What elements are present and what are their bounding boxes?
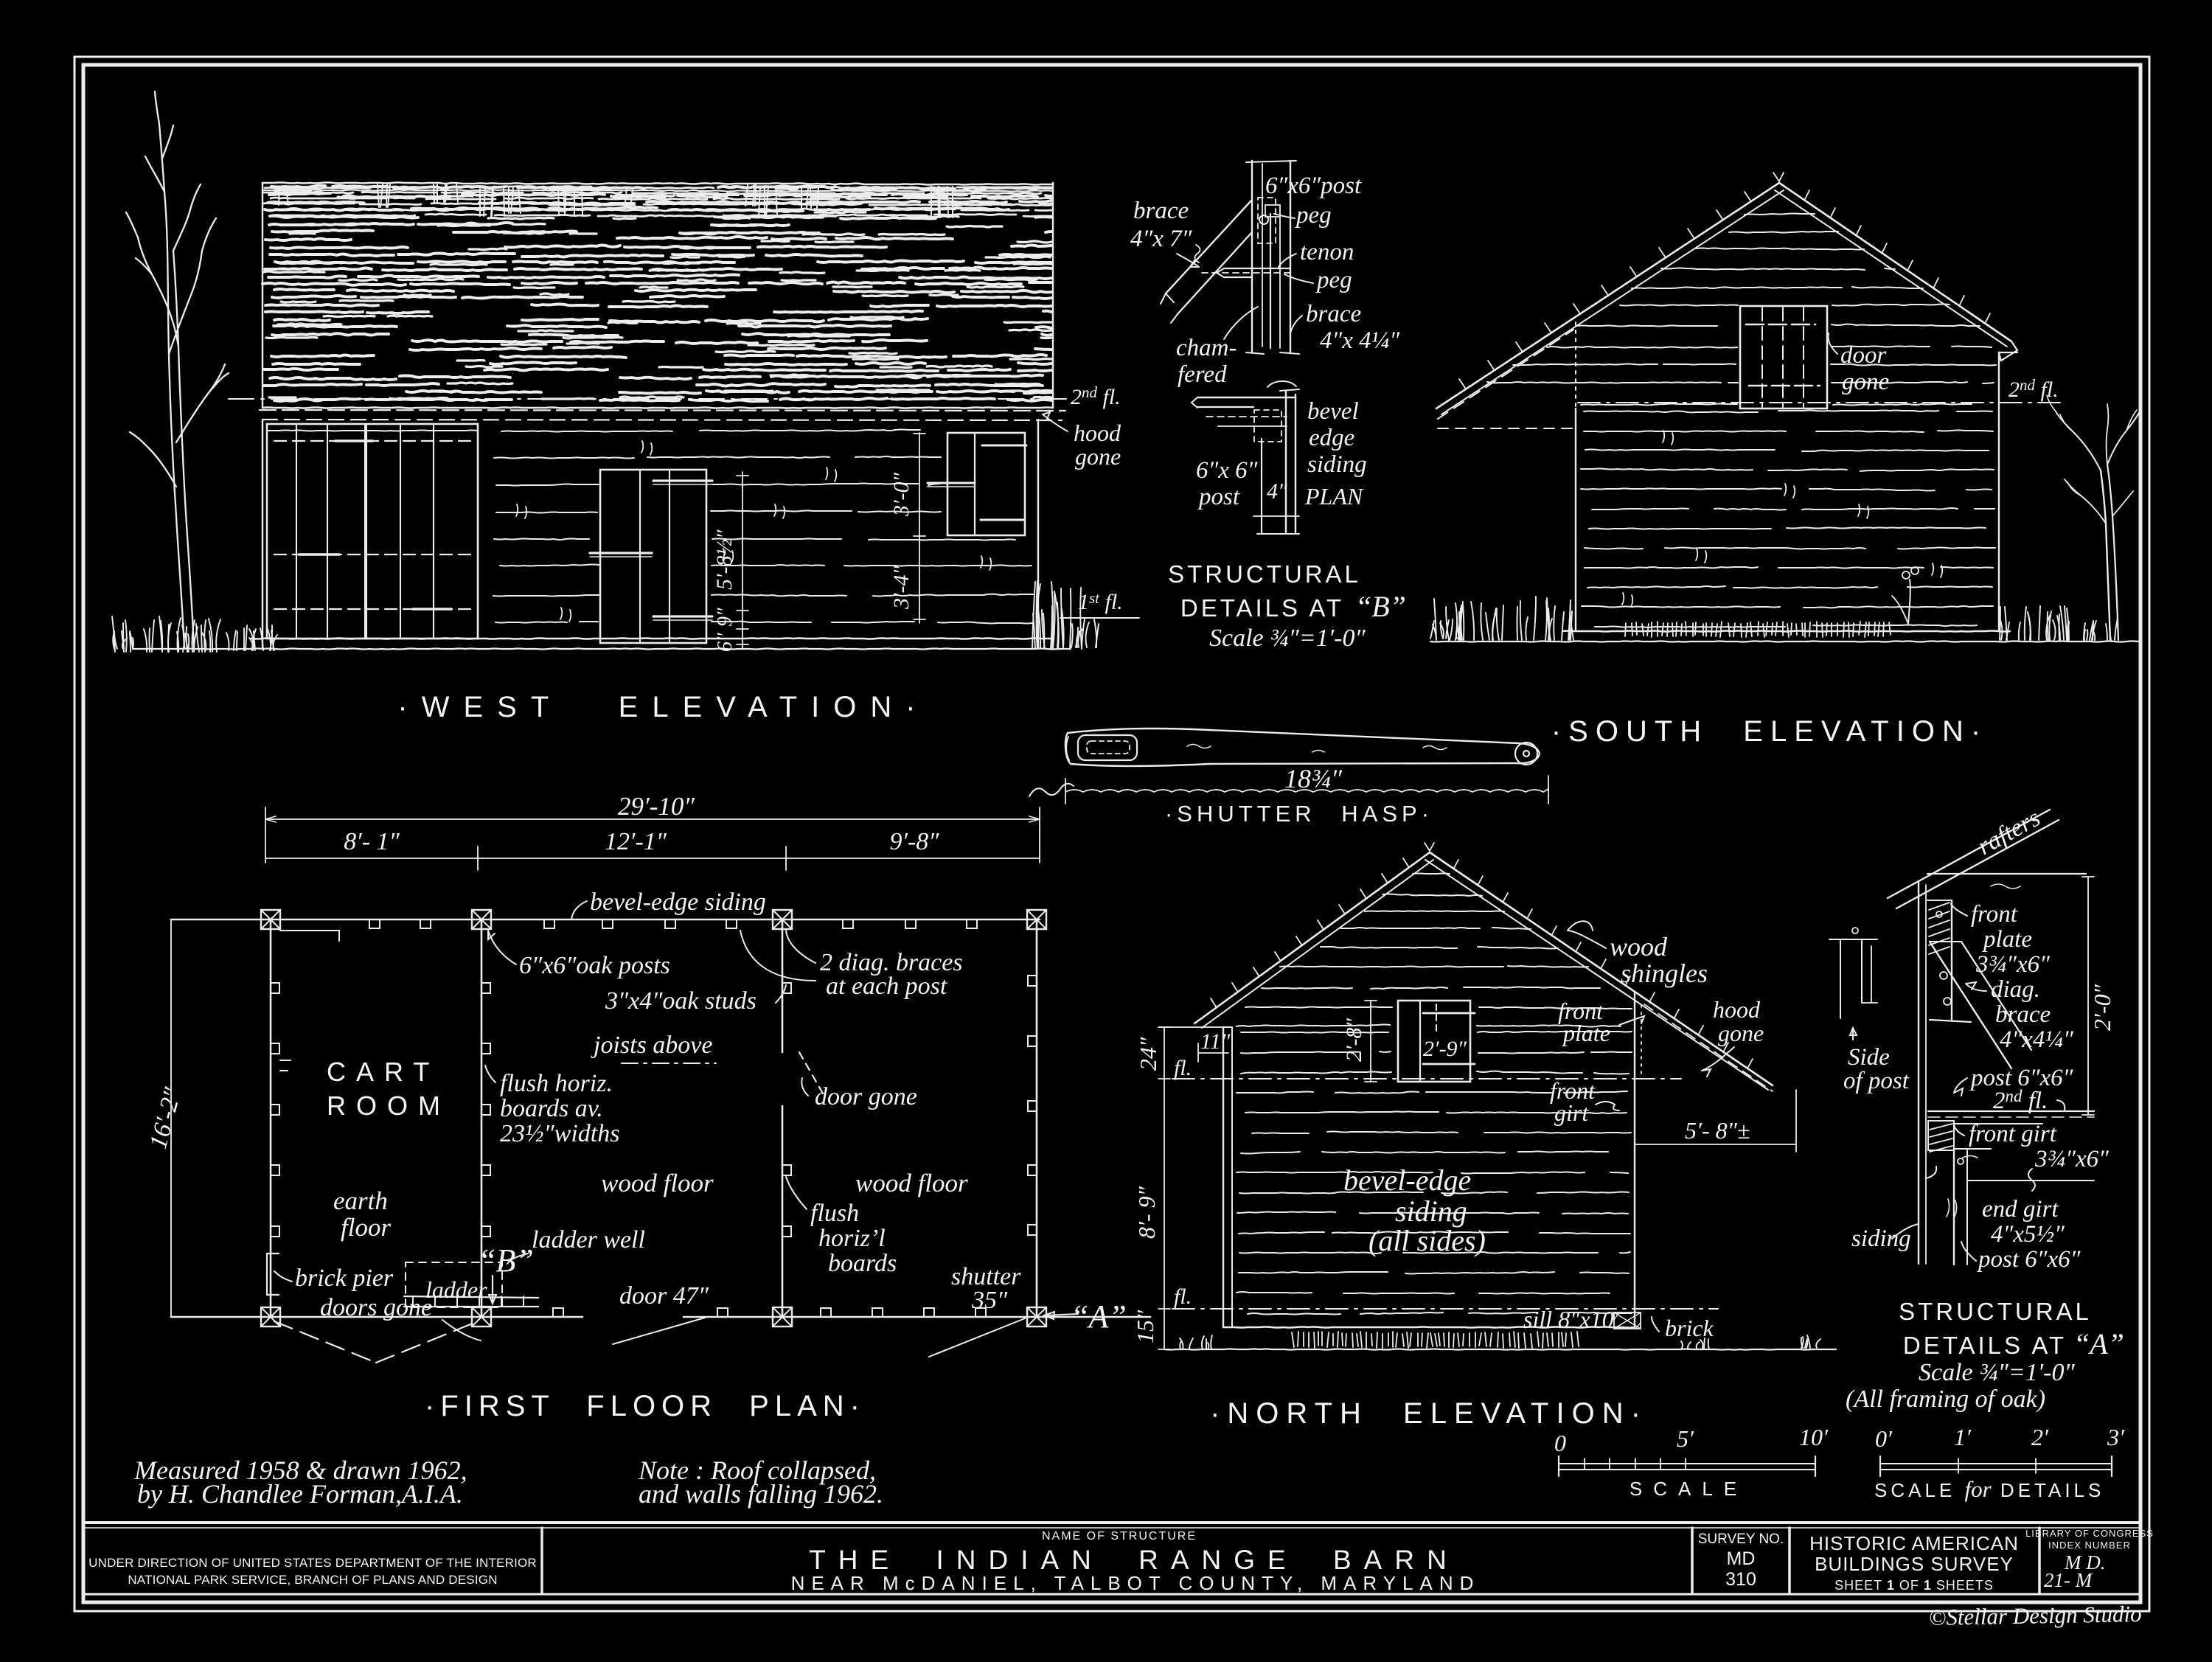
- svg-text:of post: of post: [1843, 1068, 1910, 1094]
- svg-text:INDEX NUMBER: INDEX NUMBER: [2048, 1540, 2131, 1551]
- svg-text:·FIRST FLOOR PLAN·: ·FIRST FLOOR PLAN·: [425, 1390, 866, 1422]
- svg-text:joists above: joists above: [591, 1032, 712, 1059]
- svg-text:doors gone: doors gone: [320, 1294, 432, 1321]
- svg-text:8′- 1″: 8′- 1″: [344, 828, 400, 855]
- svg-text:18¾″: 18¾″: [1284, 764, 1343, 793]
- svg-text:310: 310: [1725, 1569, 1756, 1590]
- svg-text:cham-: cham-: [1176, 335, 1237, 361]
- svg-text:35″: 35″: [971, 1287, 1008, 1314]
- svg-text:flush horiz.: flush horiz.: [500, 1070, 613, 1097]
- svg-text:tenon: tenon: [1300, 239, 1354, 265]
- svg-text:brick pier: brick pier: [295, 1265, 394, 1292]
- svg-text:post 6″x6″: post 6″x6″: [1977, 1246, 2081, 1273]
- svg-text:fl.: fl.: [1174, 1284, 1192, 1309]
- svg-text:peg: peg: [1315, 267, 1352, 293]
- svg-text:siding: siding: [1395, 1195, 1467, 1228]
- svg-text:post: post: [1197, 484, 1240, 510]
- svg-text:SCALE for DETAILS: SCALE for DETAILS: [1874, 1476, 2104, 1502]
- svg-text:wood: wood: [1610, 932, 1668, 962]
- svg-text:6″x6″post: 6″x6″post: [1265, 173, 1362, 199]
- svg-text:3′-0″: 3′-0″: [889, 472, 914, 517]
- svg-text:ladder: ladder: [425, 1276, 487, 1303]
- svg-text:plate: plate: [1982, 926, 2032, 953]
- svg-text:5′: 5′: [1677, 1425, 1694, 1452]
- svg-text:2′-9″: 2′-9″: [1423, 1037, 1467, 1061]
- svg-text:2′: 2′: [2031, 1424, 2049, 1450]
- svg-text:3¾″x6″: 3¾″x6″: [1975, 951, 2051, 978]
- svg-text:1′: 1′: [1954, 1424, 1972, 1450]
- svg-text:5′- 8″±: 5′- 8″±: [1685, 1117, 1750, 1144]
- svg-text:brace: brace: [1133, 198, 1189, 224]
- svg-text:front: front: [1971, 901, 2018, 928]
- svg-text:gone: gone: [1842, 369, 1889, 395]
- svg-text:6″x6″oak posts: 6″x6″oak posts: [519, 952, 670, 979]
- svg-text:sill 8″x10: sill 8″x10: [1523, 1306, 1614, 1332]
- svg-text:and walls falling 1962.: and walls falling 1962.: [639, 1479, 883, 1509]
- svg-text:“B”: “B”: [478, 1242, 534, 1279]
- svg-text:10′: 10′: [1799, 1424, 1829, 1450]
- svg-text:9″: 9″: [714, 608, 737, 627]
- svg-text:boards: boards: [828, 1250, 897, 1277]
- svg-text:PLAN: PLAN: [1304, 483, 1364, 510]
- svg-text:horiz’l: horiz’l: [818, 1225, 886, 1252]
- svg-text:by H. Chandlee Forman,A.I.A.: by H. Chandlee Forman,A.I.A.: [137, 1479, 463, 1509]
- svg-text:boards av.: boards av.: [500, 1095, 603, 1122]
- svg-text:·SHUTTER HASP·: ·SHUTTER HASP·: [1165, 801, 1433, 827]
- svg-text:HISTORIC AMERICAN: HISTORIC AMERICAN: [1809, 1532, 2019, 1554]
- svg-text:9′-8″: 9′-8″: [890, 828, 940, 855]
- svg-text:diag.: diag.: [1991, 976, 2040, 1003]
- svg-text:8′- 9″: 8′- 9″: [1133, 1186, 1160, 1239]
- svg-text:fl.: fl.: [1174, 1056, 1192, 1080]
- svg-text:CART: CART: [327, 1057, 439, 1087]
- svg-text:fered: fered: [1178, 361, 1227, 388]
- svg-text:Scale ¾″=1′-0″: Scale ¾″=1′-0″: [1209, 625, 1366, 652]
- svg-text:5′-8½″: 5′-8½″: [712, 529, 737, 590]
- svg-text:·NORTH ELEVATION·: ·NORTH ELEVATION·: [1210, 1397, 1648, 1430]
- svg-text:peg: peg: [1295, 202, 1332, 229]
- svg-text:3′: 3′: [2107, 1424, 2125, 1450]
- svg-text:STRUCTURAL: STRUCTURAL: [1899, 1298, 2092, 1325]
- svg-text:3″x4″oak studs: 3″x4″oak studs: [605, 987, 757, 1015]
- svg-text:(all sides): (all sides): [1368, 1224, 1486, 1257]
- svg-text:earth: earth: [333, 1186, 388, 1215]
- svg-text:(All framing of oak): (All framing of oak): [1846, 1385, 2045, 1413]
- svg-text:door gone: door gone: [815, 1083, 917, 1110]
- svg-text:4″x4¼″: 4″x4¼″: [2000, 1026, 2074, 1053]
- svg-text:door 47″: door 47″: [619, 1282, 709, 1310]
- svg-text:hood: hood: [1074, 420, 1121, 446]
- svg-text:DETAILS AT: DETAILS AT: [1903, 1332, 2067, 1359]
- svg-text:MD: MD: [1727, 1548, 1756, 1569]
- svg-text:bevel-edge: bevel-edge: [1343, 1164, 1471, 1197]
- svg-text:wood floor: wood floor: [855, 1169, 968, 1197]
- svg-text:gone: gone: [1718, 1020, 1764, 1046]
- svg-text:BUILDINGS SURVEY: BUILDINGS SURVEY: [1815, 1553, 2014, 1575]
- svg-text:plate: plate: [1562, 1020, 1610, 1046]
- svg-text:2′-8″: 2′-8″: [1342, 1018, 1366, 1062]
- svg-text:0′: 0′: [1875, 1425, 1893, 1452]
- svg-text:bevel-edge siding: bevel-edge siding: [590, 889, 766, 916]
- svg-text:STRUCTURAL: STRUCTURAL: [1168, 560, 1361, 588]
- svg-text:3¾″x6″: 3¾″x6″: [2034, 1146, 2110, 1172]
- svg-text:29′-10″: 29′-10″: [618, 792, 695, 821]
- svg-text:brick: brick: [1665, 1315, 1714, 1341]
- svg-text:UNDER DIRECTION OF UNITED STAT: UNDER DIRECTION OF UNITED STATES DEPARTM…: [88, 1556, 537, 1570]
- svg-text:door: door: [1840, 342, 1887, 369]
- svg-text:end girt: end girt: [1982, 1196, 2059, 1223]
- svg-text:edge: edge: [1309, 425, 1354, 451]
- svg-text:2′-0″: 2′-0″: [2089, 984, 2115, 1031]
- svg-text:4″: 4″: [1267, 479, 1287, 504]
- svg-text:girt: girt: [1554, 1099, 1589, 1126]
- svg-text:“B”: “B”: [1355, 590, 1406, 623]
- svg-text:15″: 15″: [1132, 1310, 1158, 1343]
- svg-text:1st fl.: 1st fl.: [1078, 589, 1123, 614]
- svg-text:4″x 7″: 4″x 7″: [1130, 226, 1193, 252]
- svg-text:Side: Side: [1848, 1044, 1890, 1071]
- svg-text:DETAILS AT: DETAILS AT: [1180, 594, 1344, 622]
- svg-text:21- M: 21- M: [2044, 1569, 2093, 1591]
- svg-text:THE INDIAN RANGE BARN: THE INDIAN RANGE BARN: [809, 1545, 1459, 1575]
- svg-text:SHEET 1 OF 1 SHEETS: SHEET 1 OF 1 SHEETS: [1834, 1578, 1994, 1593]
- svg-text:23½″widths: 23½″widths: [500, 1120, 619, 1147]
- svg-text:wood floor: wood floor: [601, 1169, 714, 1197]
- svg-text:shingles: shingles: [1621, 959, 1708, 988]
- svg-text:“A”: “A”: [2073, 1327, 2124, 1360]
- svg-text:3′-4″: 3′-4″: [889, 565, 914, 610]
- svg-text:floor: floor: [341, 1213, 391, 1242]
- svg-text:ladder well: ladder well: [532, 1226, 645, 1254]
- svg-text:6″: 6″: [714, 633, 737, 652]
- svg-text:4″x 4¼″: 4″x 4¼″: [1320, 327, 1400, 354]
- svg-text:brace: brace: [1306, 301, 1361, 327]
- svg-text:·WEST ELEVATION·: ·WEST ELEVATION·: [397, 691, 929, 723]
- svg-text:ROOM: ROOM: [327, 1091, 451, 1121]
- svg-text:6″x 6″: 6″x 6″: [1196, 457, 1259, 484]
- svg-text:©Stellar Design Studio: ©Stellar Design Studio: [1929, 1601, 2142, 1630]
- svg-text:siding: siding: [1307, 451, 1367, 478]
- svg-text:Scale ¾″=1′-0″: Scale ¾″=1′-0″: [1919, 1359, 2075, 1386]
- svg-text:SCALE: SCALE: [1630, 1478, 1747, 1500]
- svg-text:SURVEY NO.: SURVEY NO.: [1698, 1531, 1784, 1547]
- svg-text:bevel: bevel: [1307, 398, 1359, 425]
- svg-text:flush: flush: [810, 1200, 859, 1227]
- svg-text:4″x5½″: 4″x5½″: [1991, 1221, 2065, 1248]
- svg-text:NATIONAL PARK SERVICE, BRANCH: NATIONAL PARK SERVICE, BRANCH OF PLANS A…: [128, 1573, 497, 1587]
- svg-text:11″: 11″: [1200, 1029, 1231, 1054]
- svg-text:LIBRARY OF CONGRESS: LIBRARY OF CONGRESS: [2025, 1528, 2154, 1539]
- svg-text:NAME OF STRUCTURE: NAME OF STRUCTURE: [1042, 1530, 1197, 1543]
- svg-text:front girt: front girt: [1969, 1121, 2057, 1147]
- svg-text:0: 0: [1554, 1430, 1566, 1456]
- svg-text:brace: brace: [1995, 1001, 2051, 1028]
- svg-text:hood: hood: [1713, 996, 1761, 1023]
- svg-text:12′-1″: 12′-1″: [605, 828, 667, 855]
- svg-text:NEAR McDANIEL, TALBOT COUNTY,: NEAR McDANIEL, TALBOT COUNTY, MARYLAND: [791, 1572, 1481, 1594]
- svg-text:gone: gone: [1075, 443, 1121, 470]
- svg-text:siding: siding: [1851, 1225, 1911, 1252]
- svg-text:·SOUTH ELEVATION·: ·SOUTH ELEVATION·: [1551, 715, 1988, 748]
- svg-text:“A”: “A”: [1071, 1298, 1127, 1335]
- svg-text:at each post: at each post: [826, 973, 948, 1000]
- svg-text:24″: 24″: [1135, 1037, 1161, 1071]
